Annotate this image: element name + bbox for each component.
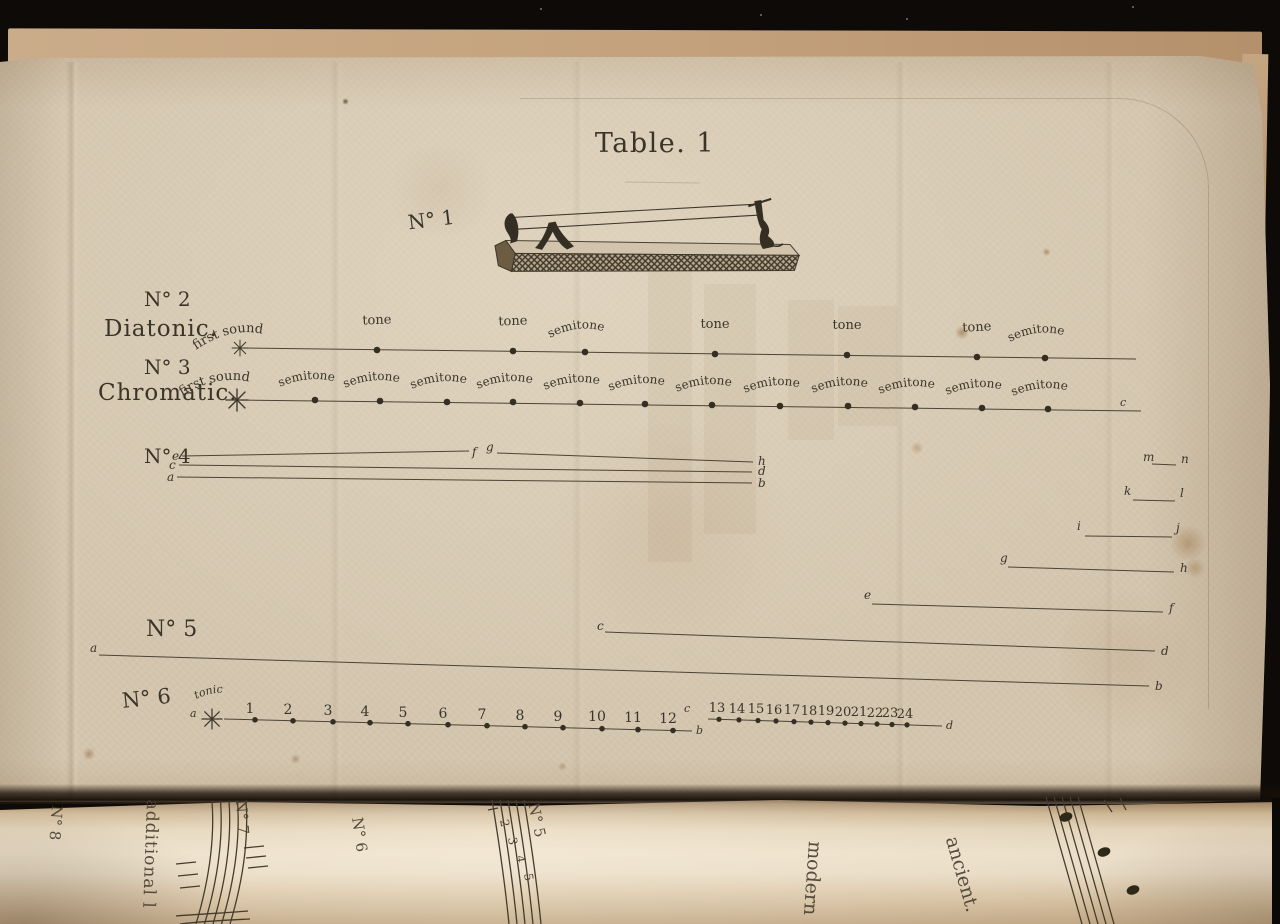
dust-speck: [540, 8, 542, 10]
verso-fig7-label: N° 7: [232, 799, 252, 835]
stain: [954, 326, 970, 339]
stain: [342, 98, 349, 105]
stain: [1168, 526, 1208, 560]
stain: [558, 762, 567, 771]
paper-crease: [66, 62, 80, 798]
stain: [1060, 576, 1190, 746]
verso-fig8-label: N° 8: [46, 805, 66, 841]
paper-crease: [895, 62, 909, 798]
stain: [380, 146, 500, 236]
stain: [1042, 248, 1051, 256]
verso-additional-line-label: additional l: [138, 799, 162, 909]
rolled-verso-page: [0, 798, 1280, 924]
stain: [82, 748, 96, 760]
ink-bleedthrough: [838, 306, 898, 426]
ink-bleedthrough: [788, 300, 834, 440]
dust-speck: [906, 18, 908, 20]
paper-crease: [330, 62, 344, 798]
stain: [290, 754, 301, 764]
plate-page: [0, 56, 1272, 804]
stain: [1184, 558, 1206, 578]
dust-speck: [1132, 6, 1134, 8]
dust-speck: [760, 14, 762, 16]
background-edge: [1272, 798, 1280, 924]
stain: [910, 442, 924, 454]
stain: [540, 424, 800, 644]
book-photo: Table. 1 N° 1 N° 2 Diatonic.: [0, 0, 1280, 924]
page-gap-shadow: [0, 784, 1280, 804]
paper-crease: [572, 62, 586, 798]
